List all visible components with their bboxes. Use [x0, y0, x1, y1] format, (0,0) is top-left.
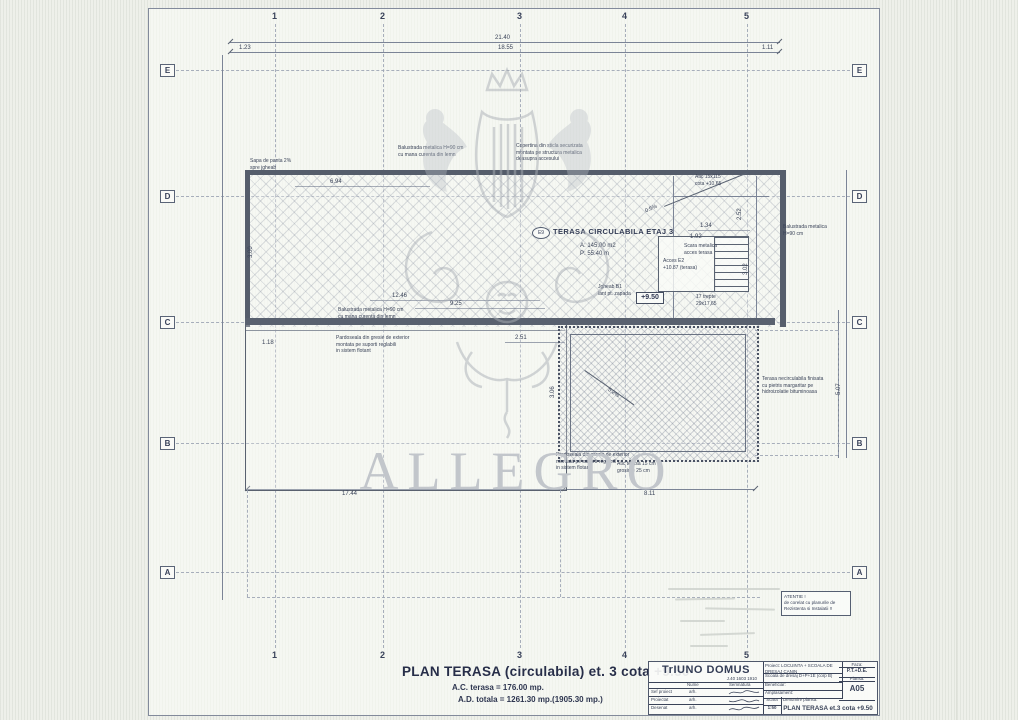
sig-row-3: Desenat arh.	[649, 704, 764, 714]
dim-v306: 3.06	[550, 386, 556, 398]
dim-bottom-right: 8.11	[644, 491, 655, 497]
grid-letter-right-C: C	[852, 316, 867, 329]
firm-cell: TrIUNO DOMUS J.40 1603 1910	[649, 662, 764, 683]
scara-value-cell: 1:50	[763, 705, 782, 714]
sig-role-1: Sef proiect	[651, 689, 672, 695]
note-pardoseala-1: Pardoseala din gresie de exterior montat…	[336, 335, 409, 355]
signature-scribble	[727, 704, 761, 713]
col-semnatura: Semnatura	[729, 682, 750, 688]
note-balustrade-mid: Balustrada metalica H=90 cm cu mana cure…	[338, 307, 403, 320]
dim-top-total: 21.40	[495, 35, 510, 41]
dim-694: 6.94	[330, 179, 342, 185]
title-block: TrIUNO DOMUS J.40 1603 1910 Nume Semnatu…	[648, 661, 878, 715]
room-perimeter: P: 55.40 m	[580, 251, 609, 257]
note-atic-top: Atic 15x115 cota +10.65	[695, 174, 721, 187]
grid-number-bottom-1: 1	[272, 650, 277, 660]
grid-number-bottom-4: 4	[622, 650, 627, 660]
grid-number-bottom-5: 5	[744, 650, 749, 660]
grid-number-top-1: 1	[272, 11, 277, 21]
dim-top-right: 1.11	[762, 45, 773, 51]
grid-letter-left-D: D	[160, 190, 175, 203]
dim-top-left: 1.23	[239, 45, 251, 51]
note-sapa: Sapa de panta 2% spre jgheab	[250, 158, 291, 171]
dim-192: 1.92	[690, 234, 702, 240]
note-atic-bottom: Atic terasa 15 cm grosime 25 cm	[617, 461, 656, 474]
axis-line-A	[176, 572, 850, 573]
plan-title: PLAN TERASA (circulabila) et. 3 cota +9.…	[402, 664, 690, 679]
below-outline-left	[247, 490, 248, 597]
sig-name-2: arh.	[689, 697, 697, 703]
grid-number-top-3: 3	[517, 11, 522, 21]
room-title: TERASA CIRCULABILA ETAJ 3	[553, 227, 674, 236]
pencil-mark	[668, 588, 780, 590]
stairs-count-note: 17 trepte 29x17,65	[696, 294, 717, 307]
dim-v302: 3.02	[743, 263, 749, 275]
plan-name-cell: PLAN TERASA et.3 cota +9.50	[781, 702, 875, 717]
plan-ad-area: A.D. totala = 1261.30 mp.(1905.30 mp.)	[458, 695, 603, 704]
signature-scribble	[727, 696, 761, 704]
ext-dash-top	[755, 330, 838, 331]
firm-name: TrIUNO DOMUS	[649, 664, 763, 676]
stair-label-1: Scara metalica acces terasa	[684, 243, 717, 256]
pencil-mark	[680, 620, 725, 622]
below-outline-mid	[560, 490, 561, 597]
grid-letter-right-D: D	[852, 190, 867, 203]
grid-letter-right-B: B	[852, 437, 867, 450]
dim-top-mid: 18.55	[498, 45, 513, 51]
stair-label-2: Acces E2 +10.87 (terasa)	[663, 258, 697, 271]
sig-role-2: Proiectat	[651, 697, 668, 703]
dim-1246: 12.46	[392, 293, 407, 299]
signature-scribble	[727, 688, 761, 696]
note-copertina: Copertina din sticla securizata montata …	[516, 143, 583, 163]
grid-number-top-4: 4	[622, 11, 627, 21]
room-area: A: 145.00 m2	[580, 243, 616, 249]
dim-251: 2.51	[515, 335, 527, 341]
grid-number-bottom-2: 2	[380, 650, 385, 660]
pencil-mark	[690, 645, 728, 647]
grid-letter-left-A: A	[160, 566, 175, 579]
dim-925: 9.25	[450, 301, 462, 307]
dim-118: 1.18	[262, 340, 274, 346]
dim-bottom-left: 17.44	[342, 491, 357, 497]
note-balustrade-right: Balustrada metalica H=90 cm	[783, 224, 827, 237]
dim-line-right-vertical-outer	[846, 170, 847, 458]
grid-number-top-2: 2	[380, 11, 385, 21]
col-nume: Nume	[687, 682, 699, 688]
dim-line-left-vertical	[222, 55, 223, 600]
grid-number-top-5: 5	[744, 11, 749, 21]
grid-number-bottom-3: 3	[517, 650, 522, 660]
skylight-inner-frame	[570, 334, 746, 452]
dim-line-top-total	[230, 42, 780, 43]
grid-letter-right-A: A	[852, 566, 867, 579]
note-terasa-necirc: Terasa necirculabila finisata cu pietris…	[762, 376, 823, 396]
sig-name-1: arh.	[689, 689, 697, 695]
sig-role-3: Desenat	[651, 705, 667, 711]
room-tag: E9	[532, 227, 550, 239]
ext-dash-bottom	[755, 455, 838, 456]
dim-134: 1.34	[700, 223, 712, 229]
wall-band-middle	[245, 318, 775, 325]
dim-v507: 5.07	[836, 383, 842, 395]
grid-letter-left-E: E	[160, 64, 175, 77]
paper-edge	[956, 0, 957, 720]
grid-letter-left-B: B	[160, 437, 175, 450]
firm-registration: J.40 1603 1910	[649, 676, 763, 682]
note-jgheab: Jgheab B1 lant pt. zapada	[598, 284, 631, 297]
axis-line-E	[176, 70, 850, 71]
grid-letter-right-E: E	[852, 64, 867, 77]
dim-line-top-seg	[230, 52, 780, 53]
atentie-note: ATENTIE ! de corelat cu planurile de Rez…	[781, 591, 851, 616]
sig-name-3: arh.	[689, 705, 697, 711]
plan-ac-area: A.C. terasa = 176.00 mp.	[452, 683, 544, 692]
dim-v300: 3.00	[248, 246, 254, 258]
partition-line-2	[756, 176, 757, 318]
dim-v252: 2.52	[737, 208, 743, 220]
project-label: Proiect:	[765, 663, 780, 668]
note-balustrade-top: Balustrada metalica H=90 cm cu mana cure…	[398, 145, 463, 158]
grid-letter-left-C: C	[160, 316, 175, 329]
elevation-box: +9.50	[636, 292, 664, 304]
